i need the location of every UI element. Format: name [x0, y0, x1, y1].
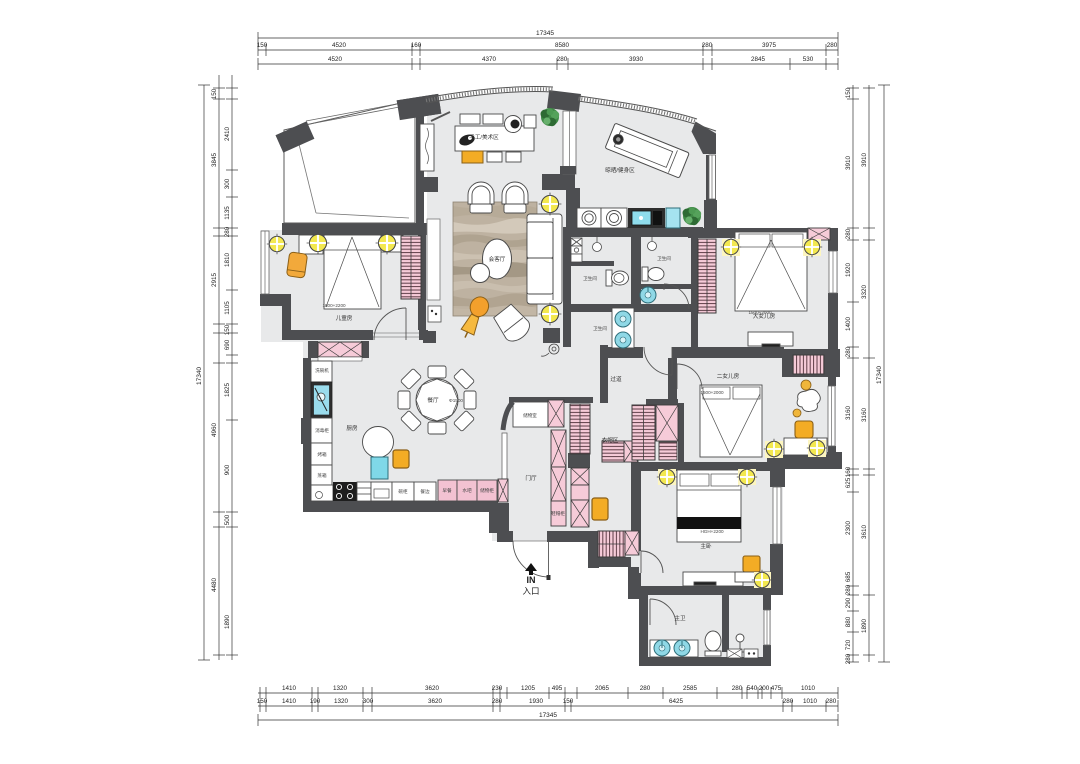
svg-text:二女儿房: 二女儿房	[717, 372, 740, 380]
svg-text:17345: 17345	[536, 30, 554, 37]
svg-text:1500+2000: 1500+2000	[700, 390, 724, 395]
svg-text:3910: 3910	[845, 156, 852, 171]
svg-text:230: 230	[492, 685, 503, 692]
svg-text:1800+2200: 1800+2200	[322, 303, 346, 308]
svg-text:2300: 2300	[845, 521, 852, 536]
svg-text:3160: 3160	[845, 406, 852, 421]
svg-text:卫生间: 卫生间	[583, 275, 597, 282]
svg-text:1500+2000: 1500+2000	[748, 310, 772, 315]
svg-text:餐厅: 餐厅	[427, 396, 439, 404]
svg-text:150: 150	[211, 88, 218, 99]
svg-text:6425: 6425	[669, 698, 684, 705]
svg-text:500: 500	[224, 514, 231, 525]
svg-text:1930: 1930	[529, 698, 544, 705]
svg-text:475: 475	[771, 685, 782, 692]
svg-text:晾晒/健身区: 晾晒/健身区	[605, 166, 635, 174]
svg-text:1920: 1920	[845, 263, 852, 278]
svg-text:280: 280	[640, 685, 651, 692]
svg-text:厨房: 厨房	[346, 424, 358, 432]
svg-text:消毒柜: 消毒柜	[315, 427, 329, 434]
svg-text:卫生间: 卫生间	[657, 255, 671, 262]
svg-text:150: 150	[845, 87, 852, 98]
svg-text:900: 900	[224, 464, 231, 475]
svg-text:8580: 8580	[555, 42, 570, 49]
svg-text:2065: 2065	[595, 685, 610, 692]
svg-text:门厅: 门厅	[525, 474, 537, 482]
svg-text:190: 190	[310, 698, 321, 705]
svg-text:160: 160	[411, 42, 422, 49]
svg-text:17340: 17340	[876, 366, 883, 384]
svg-text:4480: 4480	[211, 578, 218, 593]
svg-text:495: 495	[552, 685, 563, 692]
svg-text:280: 280	[845, 584, 852, 595]
svg-text:880: 880	[845, 616, 852, 627]
svg-text:烤箱: 烤箱	[317, 451, 327, 458]
svg-text:530: 530	[803, 56, 814, 63]
svg-text:1410: 1410	[282, 685, 297, 692]
svg-text:3910: 3910	[861, 153, 868, 168]
svg-text:3620: 3620	[428, 698, 443, 705]
svg-text:鞋帽柜: 鞋帽柜	[551, 510, 565, 517]
svg-text:1320: 1320	[333, 685, 348, 692]
svg-text:主卫: 主卫	[674, 614, 686, 622]
svg-text:洗碗机: 洗碗机	[315, 367, 329, 374]
svg-text:储物室: 储物室	[523, 412, 537, 419]
svg-text:1890: 1890	[224, 615, 231, 630]
svg-text:2410: 2410	[224, 127, 231, 142]
svg-text:1410: 1410	[282, 698, 297, 705]
svg-text:290: 290	[845, 597, 852, 608]
svg-text:2845: 2845	[751, 56, 766, 63]
svg-text:早餐: 早餐	[442, 487, 452, 494]
svg-text:720: 720	[845, 639, 852, 650]
svg-text:3975: 3975	[762, 42, 777, 49]
svg-text:4370: 4370	[482, 56, 497, 63]
svg-text:HGH+2200: HGH+2200	[700, 529, 724, 534]
svg-text:690: 690	[224, 339, 231, 350]
svg-text:1890: 1890	[861, 619, 868, 634]
svg-text:餐边: 餐边	[420, 488, 430, 495]
svg-text:3320: 3320	[861, 285, 868, 300]
svg-text:IN: IN	[527, 575, 536, 585]
svg-text:过道: 过道	[610, 375, 622, 383]
svg-text:685: 685	[845, 571, 852, 582]
svg-text:1010: 1010	[803, 698, 818, 705]
svg-text:手工/美术区: 手工/美术区	[469, 133, 499, 141]
svg-text:3620: 3620	[425, 685, 440, 692]
svg-text:会客厅: 会客厅	[489, 255, 506, 263]
svg-text:4520: 4520	[332, 42, 347, 49]
svg-text:300: 300	[224, 178, 231, 189]
svg-text:280: 280	[845, 346, 852, 357]
svg-text:储物柜: 储物柜	[480, 487, 494, 494]
svg-text:1810: 1810	[224, 253, 231, 268]
svg-text:540: 540	[747, 685, 758, 692]
svg-text:150: 150	[563, 698, 574, 705]
svg-text:17340: 17340	[196, 367, 203, 385]
svg-text:主卧: 主卧	[700, 542, 712, 550]
svg-text:衣帽区: 衣帽区	[602, 436, 619, 444]
svg-text:280: 280	[783, 698, 794, 705]
svg-text:150: 150	[257, 698, 268, 705]
svg-text:17345: 17345	[539, 712, 557, 719]
svg-text:1320: 1320	[334, 698, 349, 705]
svg-text:1205: 1205	[521, 685, 536, 692]
svg-text:1105: 1105	[224, 301, 231, 315]
svg-text:280: 280	[845, 653, 852, 664]
svg-text:卫生间: 卫生间	[593, 325, 607, 332]
svg-text:160: 160	[845, 466, 852, 477]
svg-text:4520: 4520	[328, 56, 343, 63]
svg-text:280: 280	[826, 698, 837, 705]
svg-text:280: 280	[732, 685, 743, 692]
svg-text:3930: 3930	[629, 56, 644, 63]
svg-text:2915: 2915	[211, 273, 218, 288]
svg-text:280: 280	[845, 228, 852, 239]
svg-text:1400: 1400	[845, 317, 852, 332]
svg-text:150: 150	[224, 324, 231, 335]
svg-text:280: 280	[492, 698, 503, 705]
svg-text:3610: 3610	[861, 525, 868, 540]
svg-text:280: 280	[702, 42, 713, 49]
svg-text:280: 280	[557, 56, 568, 63]
svg-text:3160: 3160	[861, 408, 868, 423]
svg-text:蒸箱: 蒸箱	[317, 472, 327, 479]
svg-text:280: 280	[224, 226, 231, 237]
svg-text:4960: 4960	[211, 423, 218, 438]
svg-text:儿童房: 儿童房	[336, 314, 353, 322]
svg-text:1135: 1135	[224, 206, 231, 220]
svg-text:1825: 1825	[224, 383, 231, 398]
svg-text:280: 280	[827, 42, 838, 49]
svg-text:1010: 1010	[801, 685, 816, 692]
svg-text:入口: 入口	[522, 586, 539, 596]
svg-text:200: 200	[759, 685, 770, 692]
svg-text:3845: 3845	[211, 153, 218, 168]
svg-text:Φ1500: Φ1500	[449, 398, 463, 403]
svg-text:300: 300	[363, 698, 374, 705]
svg-text:625: 625	[845, 477, 852, 488]
svg-text:水吧: 水吧	[462, 487, 472, 493]
svg-text:2585: 2585	[683, 685, 698, 692]
svg-text:碗柜: 碗柜	[398, 488, 408, 495]
svg-text:150: 150	[257, 42, 268, 49]
